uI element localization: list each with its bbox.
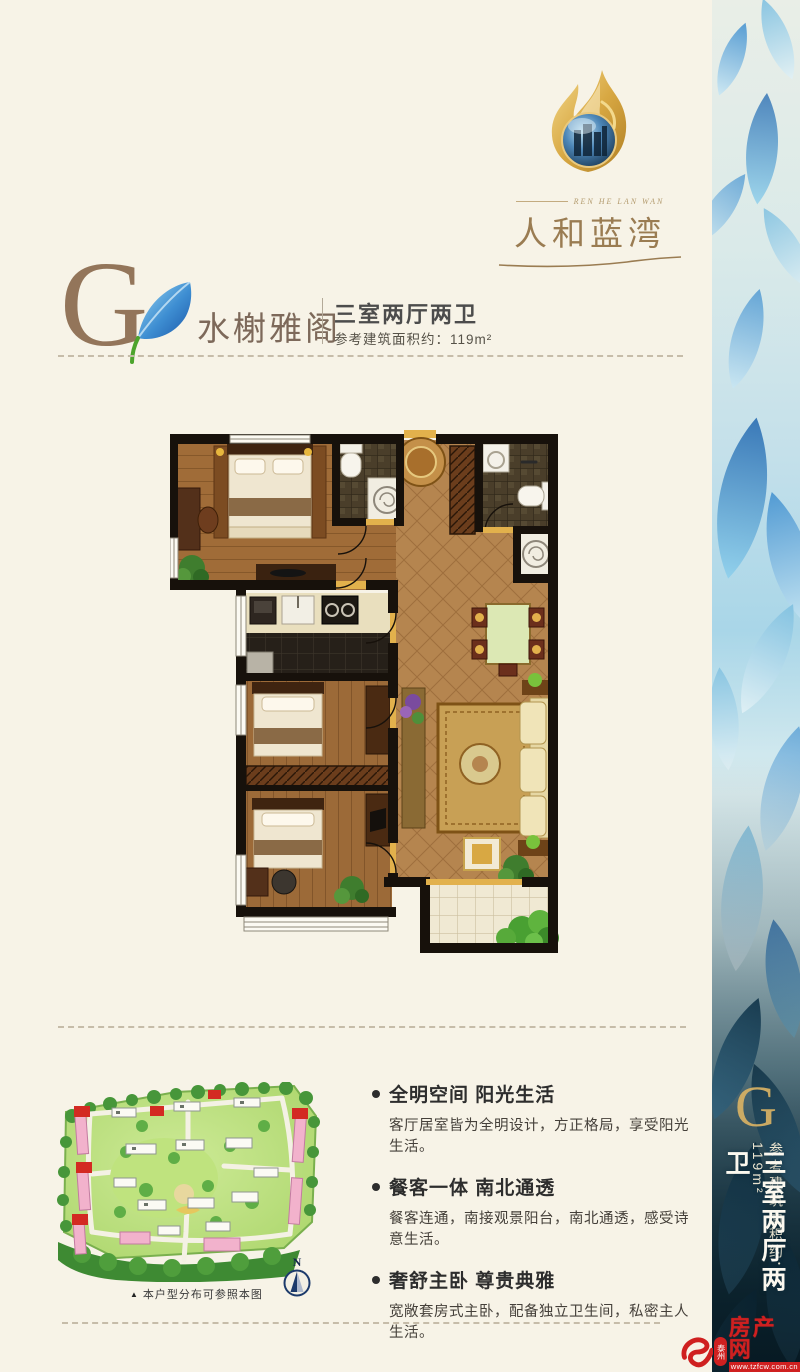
logo-en-tagline: REN HE LAN WAN xyxy=(470,197,710,206)
compass-north-label: N xyxy=(279,1256,315,1268)
hall-closet xyxy=(450,446,475,534)
feature-title: 餐客一体 南北通透 xyxy=(372,1173,692,1200)
compass: N xyxy=(279,1256,315,1303)
siteplan-caption-text: 本户型分布可参照本图 xyxy=(143,1289,263,1301)
feature-item: 全明空间 阳光生活 客厅居室皆为全明设计，方正格局，享受阳光生活。 xyxy=(372,1080,692,1156)
dashed-separator-bottom xyxy=(62,1322,660,1324)
watermark-city-badge: 泰州 xyxy=(714,1337,727,1366)
header-divider xyxy=(322,298,323,344)
watermark-e-logo-icon xyxy=(681,1332,713,1372)
bedroom-2 xyxy=(246,682,392,787)
watermark-text-block: 房产网 www.tzfcw.com.cn xyxy=(729,1317,800,1372)
sidebar-layout-vertical-text: 三室两厅两卫 xyxy=(718,1150,790,1310)
feature-title-text: 全明空间 阳光生活 xyxy=(389,1080,555,1107)
sidebar-plan-letter: G xyxy=(722,1078,790,1136)
feature-description: 客厅居室皆为全明设计，方正格局，享受阳光生活。 xyxy=(389,1114,692,1156)
dashed-separator-middle xyxy=(58,1026,686,1028)
feature-title-text: 餐客一体 南北通透 xyxy=(389,1173,555,1200)
dashed-separator-top xyxy=(58,355,683,357)
feature-item: 奢舒主卧 尊贵典雅 宽敞套房式主卧，配备独立卫生间，私密主人生活。 xyxy=(372,1266,692,1342)
brand-logo: REN HE LAN WAN 人和蓝湾 xyxy=(470,68,710,273)
siteplan-map xyxy=(56,1082,322,1282)
petal-sidebar: G 参考建筑面积约：119m² 三室两厅两卫 xyxy=(712,0,800,1372)
feature-title-text: 奢舒主卧 尊贵典雅 xyxy=(389,1266,555,1293)
feature-description: 餐客连通，南接观景阳台，南北通透，感受诗意生活。 xyxy=(389,1207,692,1249)
watermark-url: www.tzfcw.com.cn xyxy=(729,1362,800,1372)
flame-globe-logo-icon xyxy=(542,68,638,186)
plan-area-label: 参考建筑面积约：119m² xyxy=(334,328,492,348)
feature-description: 宽敞套房式主卧，配备独立卫生间，私密主人生活。 xyxy=(389,1300,692,1342)
site-watermark: 泰州 房产网 www.tzfcw.com.cn xyxy=(681,1330,800,1372)
bullet-icon xyxy=(372,1090,380,1098)
feature-item: 餐客一体 南北通透 餐客连通，南接观景阳台，南北通透，感受诗意生活。 xyxy=(372,1173,692,1249)
logo-underline-swoosh-icon xyxy=(497,256,683,268)
logo-name: 人和蓝湾 xyxy=(470,207,710,255)
floorplan-drawing xyxy=(170,430,560,960)
feature-title: 全明空间 阳光生活 xyxy=(372,1080,692,1107)
plan-name: 水榭雅阁 xyxy=(197,302,341,350)
siteplan-caption: ▲本户型分布可参照本图 xyxy=(130,1286,263,1302)
feature-list: 全明空间 阳光生活 客厅居室皆为全明设计，方正格局，享受阳光生活。 餐客一体 南… xyxy=(372,1080,692,1359)
bullet-icon xyxy=(372,1183,380,1191)
plan-layout-label: 三室两厅两卫 xyxy=(334,297,478,329)
brochure-page: G 参考建筑面积约：119m² 三室两厅两卫 xyxy=(0,0,800,1372)
compass-icon xyxy=(282,1268,312,1298)
watermark-site-name: 房产网 xyxy=(729,1317,800,1361)
petal-accent-icon xyxy=(124,276,202,364)
triangle-marker-icon: ▲ xyxy=(130,1290,139,1299)
bullet-icon xyxy=(372,1276,380,1284)
feature-title: 奢舒主卧 尊贵典雅 xyxy=(372,1266,692,1293)
